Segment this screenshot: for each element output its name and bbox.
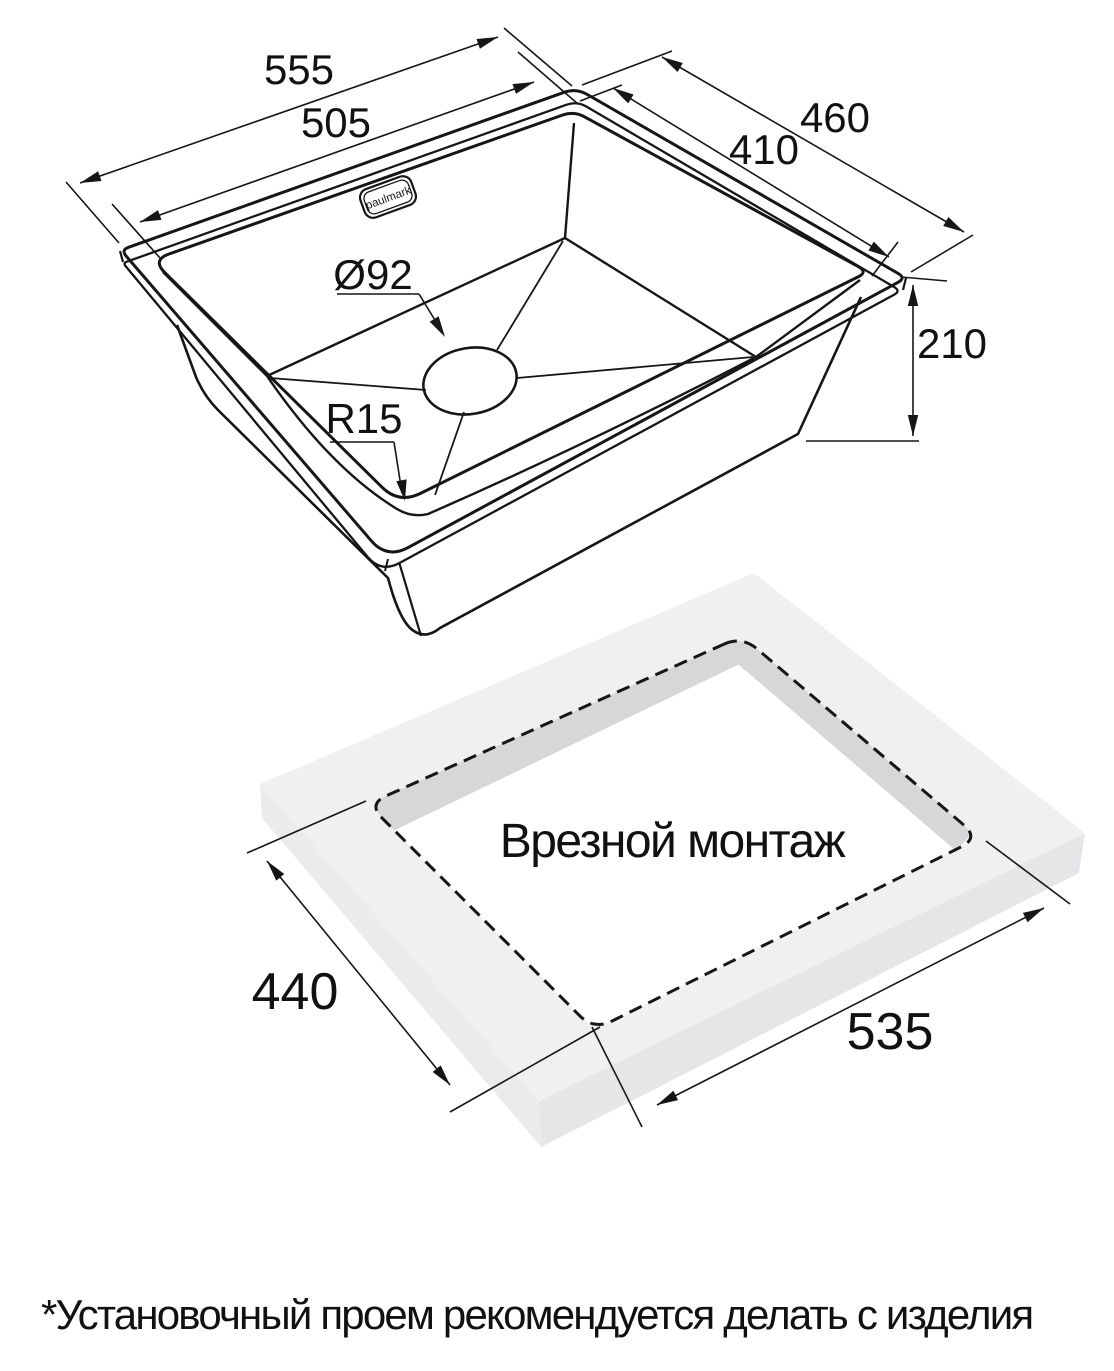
svg-text:555: 555 [264, 46, 334, 93]
svg-text:460: 460 [800, 94, 870, 141]
svg-text:Врезной монтаж: Врезной монтаж [500, 815, 846, 868]
svg-text:paulmark: paulmark [364, 185, 413, 213]
svg-text:505: 505 [301, 99, 371, 146]
svg-text:410: 410 [729, 126, 799, 173]
svg-text:R15: R15 [325, 395, 402, 442]
svg-text:535: 535 [847, 1003, 934, 1061]
svg-text:Ø92: Ø92 [333, 251, 412, 298]
svg-text:440: 440 [252, 963, 339, 1021]
svg-text:210: 210 [917, 320, 987, 367]
svg-text:*Установочный проем рекомендуе: *Установочный проем рекомендуется делать… [41, 1291, 1032, 1338]
